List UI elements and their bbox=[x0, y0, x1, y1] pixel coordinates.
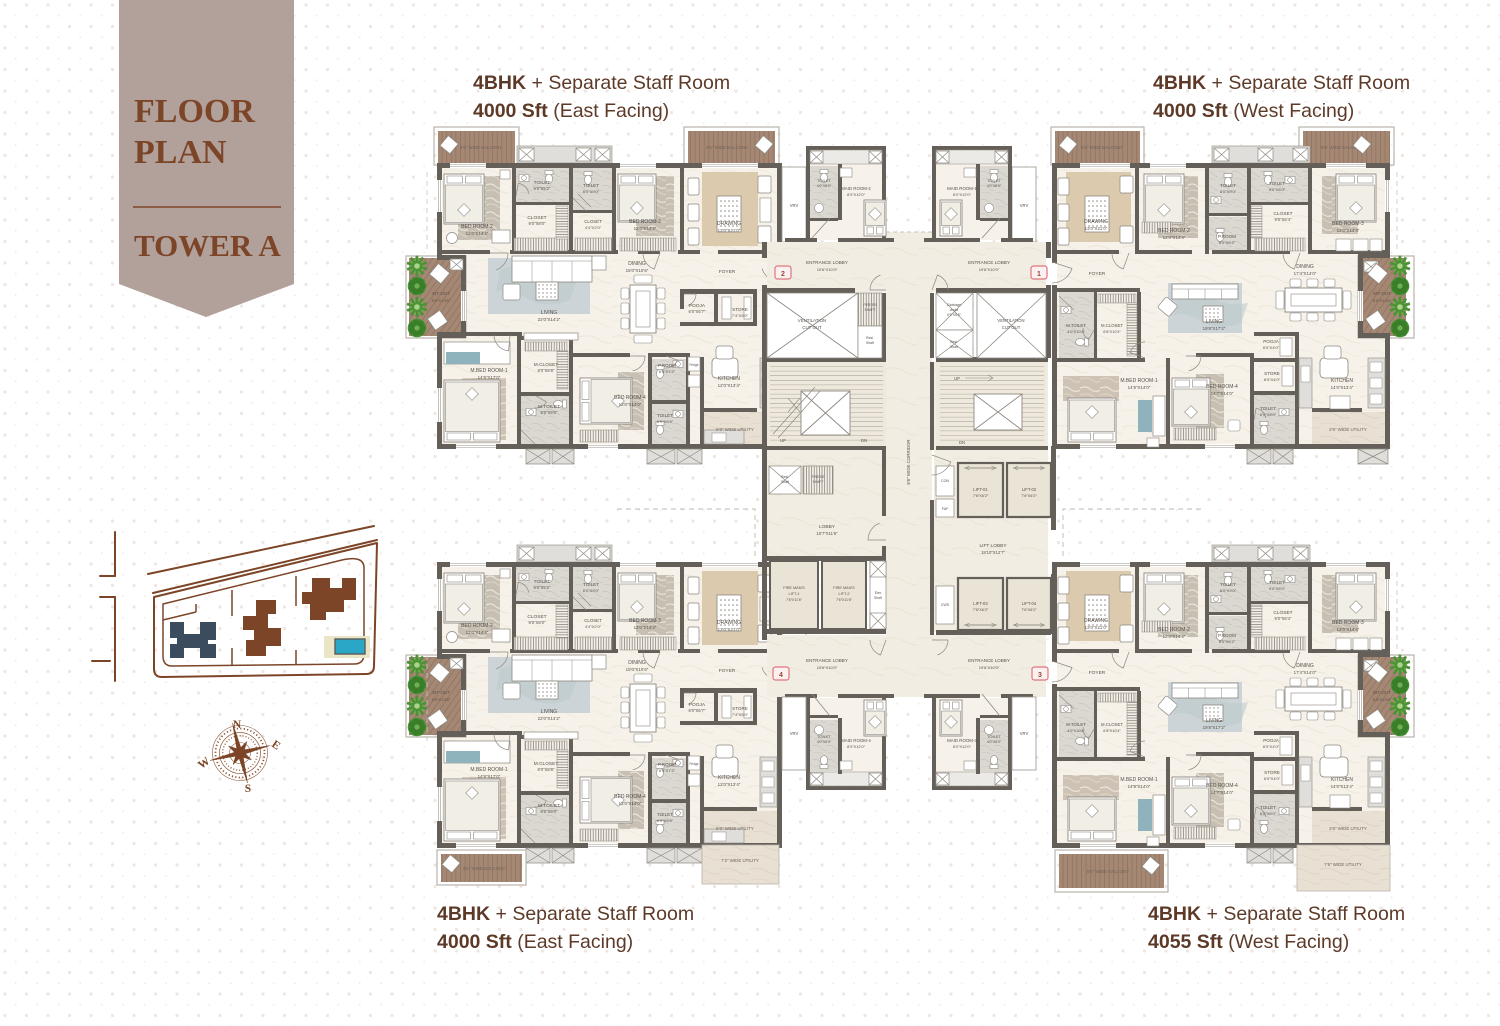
svg-text:6’0″X4’0″: 6’0″X4’0″ bbox=[1264, 776, 1281, 781]
svg-text:LIFT-04: LIFT-04 bbox=[1022, 601, 1037, 606]
svg-text:LIFT-02: LIFT-02 bbox=[1022, 487, 1037, 492]
svg-text:12’0″X14’4″: 12’0″X14’4″ bbox=[634, 625, 657, 630]
svg-text:2: 2 bbox=[781, 271, 785, 278]
svg-text:Shaft: Shaft bbox=[950, 345, 958, 349]
svg-text:BED ROOM-2: BED ROOM-2 bbox=[461, 224, 493, 230]
svg-text:ENTRANCE LOBBY: ENTRANCE LOBBY bbox=[806, 658, 848, 663]
svg-text:DINING: DINING bbox=[1296, 663, 1314, 669]
svg-text:8’0″X9’0″: 8’0″X9’0″ bbox=[541, 809, 558, 814]
svg-text:LIFT-03: LIFT-03 bbox=[973, 601, 988, 606]
svg-text:6’0″ WIDE UTILITY: 6’0″ WIDE UTILITY bbox=[716, 826, 754, 831]
svg-text:8’0″X12’0″: 8’0″X12’0″ bbox=[953, 192, 972, 197]
svg-text:MAID ROOM-1: MAID ROOM-1 bbox=[947, 186, 977, 191]
svg-text:5’6″ WIDE BALCONY: 5’6″ WIDE BALCONY bbox=[1087, 869, 1129, 874]
svg-text:14’0″X13’4″: 14’0″X13’4″ bbox=[1331, 385, 1354, 390]
svg-text:3’6″ WIDE UTILITY: 3’6″ WIDE UTILITY bbox=[1329, 826, 1367, 831]
svg-text:TOILET: TOILET bbox=[657, 413, 673, 418]
svg-text:6’0″X7’2″: 6’0″X7’2″ bbox=[659, 369, 676, 374]
svg-text:6’0″X6.5″: 6’0″X6.5″ bbox=[947, 313, 961, 317]
svg-text:FOYER: FOYER bbox=[719, 668, 736, 674]
svg-text:8’0″X12’0″: 8’0″X12’0″ bbox=[847, 744, 866, 749]
svg-text:7’6″X6’2″: 7’6″X6’2″ bbox=[1021, 608, 1037, 612]
svg-text:LIFT-1: LIFT-1 bbox=[789, 592, 800, 596]
svg-text:FIRE ES: FIRE ES bbox=[863, 303, 877, 307]
svg-text:17’4″X14’0″: 17’4″X14’0″ bbox=[1294, 271, 1317, 276]
svg-text:P.ROOM: P.ROOM bbox=[1218, 633, 1236, 638]
svg-text:7’2″ WIDE UTILITY: 7’2″ WIDE UTILITY bbox=[721, 858, 759, 863]
svg-text:MAID ROOM-2: MAID ROOM-2 bbox=[841, 186, 871, 191]
svg-text:TOILET: TOILET bbox=[1269, 580, 1285, 585]
svg-text:MAID ROOM-4: MAID ROOM-4 bbox=[841, 738, 871, 743]
svg-text:N: N bbox=[233, 719, 242, 731]
svg-text:P.ROOM: P.ROOM bbox=[1218, 234, 1236, 239]
svg-text:4000 Sft (West Facing): 4000 Sft (West Facing) bbox=[1153, 100, 1354, 122]
svg-text:VRV: VRV bbox=[790, 731, 799, 736]
svg-text:BED ROOM-3: BED ROOM-3 bbox=[629, 618, 661, 624]
svg-text:TOILET: TOILET bbox=[817, 734, 831, 739]
svg-text:9’0″X6’4″: 9’0″X6’4″ bbox=[1275, 217, 1292, 222]
svg-text:4’0″X10’4″: 4’0″X10’4″ bbox=[1067, 729, 1085, 733]
svg-text:KITCHEN: KITCHEN bbox=[1331, 378, 1353, 384]
svg-text:FIRE ES: FIRE ES bbox=[812, 475, 826, 479]
svg-text:6’0″X9’0″: 6’0″X9’0″ bbox=[1220, 189, 1237, 194]
svg-text:UP: UP bbox=[780, 438, 786, 443]
svg-text:4BHK + Separate Staff Room: 4BHK + Separate Staff Room bbox=[473, 72, 730, 94]
svg-text:LIVING: LIVING bbox=[541, 310, 558, 316]
svg-text:Shaft: Shaft bbox=[874, 596, 882, 600]
svg-text:12’0″X14’4″: 12’0″X14’4″ bbox=[1163, 634, 1186, 639]
svg-text:6’0″X9’0″: 6’0″X9’0″ bbox=[1220, 588, 1237, 593]
svg-text:BED ROOM-2: BED ROOM-2 bbox=[1158, 627, 1190, 633]
svg-text:FOYER: FOYER bbox=[719, 269, 736, 275]
svg-text:KITCHEN: KITCHEN bbox=[718, 376, 740, 382]
svg-text:3’6″ WIDE BALCONY: 3’6″ WIDE BALCONY bbox=[706, 145, 748, 150]
svg-text:TOILET: TOILET bbox=[1269, 181, 1285, 186]
svg-text:TOILET: TOILET bbox=[1260, 805, 1276, 810]
svg-text:8’0″X9’0″: 8’0″X9’0″ bbox=[541, 410, 558, 415]
svg-text:M.BED ROOM-1: M.BED ROOM-1 bbox=[1120, 378, 1157, 384]
svg-text:SIT-OUT: SIT-OUT bbox=[1373, 690, 1391, 695]
svg-text:4’0″X8’0″: 4’0″X8’0″ bbox=[817, 184, 832, 188]
svg-text:Elec: Elec bbox=[875, 591, 882, 595]
svg-text:6’0″ WIDE UTILITY: 6’0″ WIDE UTILITY bbox=[716, 427, 754, 432]
svg-text:PLAN: PLAN bbox=[134, 134, 227, 171]
svg-text:CLOSET: CLOSET bbox=[584, 618, 602, 623]
svg-text:4BHK + Separate Staff Room: 4BHK + Separate Staff Room bbox=[1153, 72, 1410, 94]
svg-text:4’4″X2’0″: 4’4″X2’0″ bbox=[585, 624, 602, 629]
svg-text:DINING: DINING bbox=[1296, 264, 1314, 270]
svg-text:4’0″X8’0″: 4’0″X8’0″ bbox=[817, 740, 832, 744]
svg-text:DINING: DINING bbox=[628, 660, 646, 666]
svg-text:6’0″X5’7″: 6’0″X5’7″ bbox=[689, 309, 706, 314]
svg-text:LIVING: LIVING bbox=[1206, 718, 1223, 724]
svg-text:7’6″X6’2″: 7’6″X6’2″ bbox=[1021, 494, 1037, 498]
svg-text:FAF: FAF bbox=[942, 507, 949, 511]
svg-text:SIT-OUT: SIT-OUT bbox=[432, 690, 450, 695]
svg-text:4000 Sft (East Facing): 4000 Sft (East Facing) bbox=[473, 100, 669, 122]
svg-text:4055 Sft (West Facing): 4055 Sft (West Facing) bbox=[1148, 931, 1349, 953]
svg-text:9’0″X5’2″: 9’0″X5’2″ bbox=[534, 186, 551, 191]
svg-text:M.BED ROOM-1: M.BED ROOM-1 bbox=[1120, 777, 1157, 783]
svg-text:9’0″X5’2″: 9’0″X5’2″ bbox=[534, 585, 551, 590]
svg-text:VRV: VRV bbox=[790, 203, 799, 208]
svg-text:CUT OUT: CUT OUT bbox=[1002, 325, 1021, 330]
svg-text:TOILET: TOILET bbox=[817, 178, 831, 183]
svg-text:VENTILATION: VENTILATION bbox=[798, 318, 826, 323]
svg-text:SHAFT: SHAFT bbox=[813, 480, 824, 484]
svg-text:4’4″X2’0″: 4’4″X2’0″ bbox=[585, 225, 602, 230]
svg-text:15’0″X10’6″: 15’0″X10’6″ bbox=[626, 667, 649, 672]
svg-text:13’0″X21’0″: 13’0″X21’0″ bbox=[1085, 625, 1108, 630]
svg-text:14’0″X13’4″: 14’0″X13’4″ bbox=[1331, 784, 1354, 789]
svg-text:7’6″X11’6″: 7’6″X11’6″ bbox=[836, 598, 853, 602]
svg-text:CWS: CWS bbox=[941, 603, 950, 607]
svg-text:DN: DN bbox=[959, 440, 965, 445]
svg-text:5’6″ WIDE BALCONY: 5’6″ WIDE BALCONY bbox=[1081, 145, 1123, 150]
svg-text:1: 1 bbox=[1037, 271, 1041, 278]
svg-text:6’0″X4’0″: 6’0″X4’0″ bbox=[1263, 744, 1280, 749]
svg-text:4BHK + Separate Staff Room: 4BHK + Separate Staff Room bbox=[437, 903, 694, 925]
svg-text:FIRE MAN'S: FIRE MAN'S bbox=[783, 586, 805, 590]
svg-text:3’6″ WIDE BALCONY: 3’6″ WIDE BALCONY bbox=[463, 866, 505, 871]
svg-text:6’0″X6’2″: 6’0″X6’2″ bbox=[1219, 639, 1236, 644]
svg-text:6’0″X6’0″: 6’0″X6’0″ bbox=[1260, 811, 1277, 816]
svg-text:22’0″X14’2″: 22’0″X14’2″ bbox=[538, 716, 561, 721]
svg-text:TOILET: TOILET bbox=[583, 183, 599, 188]
svg-text:6’0″X9’0″: 6’0″X9’0″ bbox=[583, 588, 600, 593]
svg-text:SHAFT: SHAFT bbox=[864, 308, 875, 312]
svg-text:UP: UP bbox=[954, 376, 960, 381]
svg-text:4’0″X10’4″: 4’0″X10’4″ bbox=[1067, 330, 1085, 334]
svg-text:FIRE MAN'S: FIRE MAN'S bbox=[833, 586, 855, 590]
svg-text:19’6″X10’0″: 19’6″X10’0″ bbox=[979, 665, 1000, 670]
svg-text:Resi.: Resi. bbox=[781, 475, 789, 479]
svg-text:BED ROOM-4: BED ROOM-4 bbox=[614, 395, 646, 401]
svg-text:14’9″X17’0″: 14’9″X17’0″ bbox=[478, 375, 501, 380]
svg-text:14’9″X14’0″: 14’9″X14’0″ bbox=[1128, 385, 1151, 390]
svg-text:BED ROOM-4: BED ROOM-4 bbox=[614, 794, 646, 800]
svg-text:8’0″X12’0″: 8’0″X12’0″ bbox=[953, 744, 972, 749]
svg-text:VRV: VRV bbox=[1020, 203, 1029, 208]
svg-text:12’0″X14’4″: 12’0″X14’4″ bbox=[1337, 228, 1360, 233]
svg-text:LIFT-01: LIFT-01 bbox=[973, 487, 988, 492]
svg-text:15’0″X10’6″: 15’0″X10’6″ bbox=[626, 268, 649, 273]
svg-text:TOWER A: TOWER A bbox=[134, 228, 281, 263]
svg-text:FOYER: FOYER bbox=[1089, 670, 1106, 676]
svg-text:Fridge: Fridge bbox=[689, 762, 698, 766]
svg-text:13’0″X21’0″: 13’0″X21’0″ bbox=[718, 627, 741, 632]
svg-text:19’6″X10’0″: 19’6″X10’0″ bbox=[817, 665, 838, 670]
svg-text:22’0″X14’2″: 22’0″X14’2″ bbox=[538, 317, 561, 322]
svg-text:ENTRANCE LOBBY: ENTRANCE LOBBY bbox=[806, 260, 848, 265]
svg-text:LOBBY: LOBBY bbox=[819, 524, 836, 530]
svg-text:7’4″X5’0″: 7’4″X5’0″ bbox=[732, 313, 749, 318]
svg-text:CON: CON bbox=[941, 479, 949, 483]
svg-text:STORE: STORE bbox=[1264, 770, 1280, 775]
svg-text:LIVING: LIVING bbox=[541, 709, 558, 715]
svg-text:3’6″ WIDE BALCONY: 3’6″ WIDE BALCONY bbox=[460, 145, 502, 150]
svg-text:12’0″X14’4″: 12’0″X14’4″ bbox=[1337, 627, 1360, 632]
svg-text:12’0″X14’4″: 12’0″X14’4″ bbox=[466, 231, 489, 236]
svg-text:12’0″X14’0″: 12’0″X14’0″ bbox=[619, 801, 642, 806]
svg-text:8’0″X13’6″: 8’0″X13’6″ bbox=[1373, 697, 1392, 702]
svg-text:SIT-OUT: SIT-OUT bbox=[1373, 291, 1391, 296]
svg-text:DINING: DINING bbox=[628, 261, 646, 267]
svg-text:12’0″X13’4″: 12’0″X13’4″ bbox=[718, 383, 741, 388]
svg-text:KITCHEN: KITCHEN bbox=[1331, 777, 1353, 783]
svg-text:4’0″X8’0″: 4’0″X8’0″ bbox=[987, 740, 1002, 744]
svg-text:9’0″X13’6″: 9’0″X13’6″ bbox=[432, 697, 451, 702]
svg-text:4’0″X8’0″: 4’0″X8’0″ bbox=[987, 184, 1002, 188]
svg-text:M.TOILET: M.TOILET bbox=[1066, 722, 1086, 727]
svg-text:9’0″X6’0″: 9’0″X6’0″ bbox=[1269, 187, 1286, 192]
svg-text:9’0″X6’4″: 9’0″X6’4″ bbox=[1275, 616, 1292, 621]
svg-text:M.BED ROOM-1: M.BED ROOM-1 bbox=[470, 368, 507, 374]
svg-text:SIT-OUT: SIT-OUT bbox=[432, 291, 450, 296]
svg-text:12’0″X13’4″: 12’0″X13’4″ bbox=[718, 782, 741, 787]
svg-text:19’6″X10’0″: 19’6″X10’0″ bbox=[817, 267, 838, 272]
svg-text:Resi.: Resi. bbox=[866, 336, 874, 340]
svg-text:DRAWING: DRAWING bbox=[1084, 219, 1108, 225]
svg-text:6’0″X6’6″: 6’0″X6’6″ bbox=[657, 818, 674, 823]
svg-text:TOILET: TOILET bbox=[657, 812, 673, 817]
svg-text:6’0″X6’6″: 6’0″X6’6″ bbox=[657, 419, 674, 424]
svg-text:7’6″ WIDE UTILITY: 7’6″ WIDE UTILITY bbox=[1324, 862, 1362, 867]
svg-text:BED ROOM-2: BED ROOM-2 bbox=[1158, 228, 1190, 234]
svg-text:CLOSET: CLOSET bbox=[584, 219, 602, 224]
svg-text:TOILET: TOILET bbox=[987, 178, 1001, 183]
svg-text:VENTILATION: VENTILATION bbox=[997, 318, 1024, 323]
svg-text:TOILET: TOILET bbox=[987, 734, 1001, 739]
svg-text:7’6″X11’6″: 7’6″X11’6″ bbox=[786, 598, 803, 602]
svg-text:TOILET: TOILET bbox=[1220, 183, 1236, 188]
svg-text:TOILET: TOILET bbox=[583, 582, 599, 587]
svg-text:3’6″ WIDE UTILITY: 3’6″ WIDE UTILITY bbox=[1329, 427, 1367, 432]
svg-text:ENTRANCE LOBBY: ENTRANCE LOBBY bbox=[968, 260, 1010, 265]
svg-text:DN: DN bbox=[861, 438, 867, 443]
svg-text:6’0″X5’7″: 6’0″X5’7″ bbox=[689, 708, 706, 713]
svg-text:DRAWING: DRAWING bbox=[717, 221, 741, 227]
svg-text:12’0″X14’4″: 12’0″X14’4″ bbox=[634, 226, 657, 231]
svg-text:LIFT LOBBY: LIFT LOBBY bbox=[979, 543, 1007, 549]
svg-text:M.BED ROOM-1: M.BED ROOM-1 bbox=[470, 767, 507, 773]
svg-text:BED ROOM-3: BED ROOM-3 bbox=[1332, 620, 1364, 626]
svg-text:FLOOR: FLOOR bbox=[134, 93, 255, 130]
svg-text:P.ROOM: P.ROOM bbox=[658, 762, 676, 767]
svg-text:9’0″X8’0″: 9’0″X8’0″ bbox=[529, 620, 546, 625]
svg-text:6’0″X9’0″: 6’0″X9’0″ bbox=[583, 189, 600, 194]
svg-text:Fridge: Fridge bbox=[689, 363, 698, 367]
svg-text:19’8″X17’2″: 19’8″X17’2″ bbox=[1203, 326, 1226, 331]
svg-text:14’7″X14’0″: 14’7″X14’0″ bbox=[1211, 790, 1234, 795]
svg-text:8’0″X8’8″: 8’0″X8’8″ bbox=[538, 767, 555, 772]
svg-text:STORE: STORE bbox=[732, 307, 748, 312]
svg-text:LIFT-2: LIFT-2 bbox=[839, 592, 850, 596]
svg-text:7’6″X6’2″: 7’6″X6’2″ bbox=[973, 494, 989, 498]
svg-text:6’0″X4’0″: 6’0″X4’0″ bbox=[1263, 345, 1280, 350]
svg-text:6’0″X7’2″: 6’0″X7’2″ bbox=[659, 768, 676, 773]
svg-text:POOJA: POOJA bbox=[1263, 339, 1280, 344]
svg-text:DRAWING: DRAWING bbox=[1084, 618, 1108, 624]
svg-text:19’10″X12’7″: 19’10″X12’7″ bbox=[981, 550, 1005, 555]
svg-text:Shaft: Shaft bbox=[866, 341, 874, 345]
svg-text:9’0″X8’0″: 9’0″X8’0″ bbox=[529, 221, 546, 226]
svg-text:8’0″X8’8″: 8’0″X8’8″ bbox=[538, 368, 555, 373]
svg-text:BED ROOM-3: BED ROOM-3 bbox=[1332, 221, 1364, 227]
svg-text:12’0″X14’4″: 12’0″X14’4″ bbox=[1163, 235, 1186, 240]
svg-text:TOILET: TOILET bbox=[1220, 582, 1236, 587]
svg-text:14’9″X14’0″: 14’9″X14’0″ bbox=[1128, 784, 1151, 789]
svg-text:3: 3 bbox=[1038, 672, 1042, 679]
svg-text:VRV: VRV bbox=[1020, 731, 1029, 736]
svg-text:DRAWING: DRAWING bbox=[717, 620, 741, 626]
svg-text:4000 Sft (East Facing): 4000 Sft (East Facing) bbox=[437, 931, 633, 953]
svg-text:STORE: STORE bbox=[1264, 371, 1280, 376]
svg-text:4: 4 bbox=[779, 672, 783, 679]
svg-text:M.CLOSET: M.CLOSET bbox=[1101, 722, 1123, 727]
svg-text:12’0″X14’4″: 12’0″X14’4″ bbox=[466, 630, 489, 635]
svg-text:P.ROOM: P.ROOM bbox=[658, 363, 676, 368]
svg-text:12’0″X14’0″: 12’0″X14’0″ bbox=[619, 402, 642, 407]
svg-text:4BHK + Separate Staff Room: 4BHK + Separate Staff Room bbox=[1148, 903, 1405, 925]
svg-text:FOYER: FOYER bbox=[1089, 271, 1106, 277]
svg-text:BED ROOM-2: BED ROOM-2 bbox=[461, 623, 493, 629]
svg-text:BED ROOM-3: BED ROOM-3 bbox=[629, 219, 661, 225]
svg-text:14’7″X14’0″: 14’7″X14’0″ bbox=[1211, 391, 1234, 396]
svg-text:S: S bbox=[245, 783, 251, 795]
svg-text:7’4″X5’0″: 7’4″X5’0″ bbox=[732, 712, 749, 717]
svg-text:TOILET: TOILET bbox=[1260, 406, 1276, 411]
svg-text:BED ROOM-4: BED ROOM-4 bbox=[1206, 783, 1238, 789]
svg-text:CUT OUT: CUT OUT bbox=[802, 325, 822, 330]
svg-text:19’6″X10’0″: 19’6″X10’0″ bbox=[979, 267, 1000, 272]
svg-text:Garbage: Garbage bbox=[947, 303, 961, 307]
svg-text:ENTRANCE LOBBY: ENTRANCE LOBBY bbox=[968, 658, 1010, 663]
svg-text:M.CLOSET: M.CLOSET bbox=[1101, 323, 1123, 328]
svg-text:7’6″X6’2″: 7’6″X6’2″ bbox=[973, 608, 989, 612]
svg-text:19’8″X17’2″: 19’8″X17’2″ bbox=[1203, 725, 1226, 730]
svg-text:6’8″X10’4″: 6’8″X10’4″ bbox=[1103, 330, 1121, 334]
svg-text:LIVING: LIVING bbox=[1206, 319, 1223, 325]
svg-text:9’0″X13’6″: 9’0″X13’6″ bbox=[432, 298, 451, 303]
svg-text:8’0″X12’0″: 8’0″X12’0″ bbox=[847, 192, 866, 197]
svg-text:Shaft: Shaft bbox=[781, 480, 789, 484]
svg-text:MAID ROOM-3: MAID ROOM-3 bbox=[947, 738, 977, 743]
svg-text:14’9″X17’0″: 14’9″X17’0″ bbox=[478, 774, 501, 779]
svg-text:6’0″X4’0″: 6’0″X4’0″ bbox=[1264, 377, 1281, 382]
svg-text:17’4″X14’0″: 17’4″X14’0″ bbox=[1294, 670, 1317, 675]
svg-text:9’0″X6’0″: 9’0″X6’0″ bbox=[1269, 586, 1286, 591]
svg-text:Resi.: Resi. bbox=[950, 340, 958, 344]
svg-text:POOJA: POOJA bbox=[1263, 738, 1280, 743]
svg-text:STORE: STORE bbox=[732, 706, 748, 711]
svg-text:6’8″X10’4″: 6’8″X10’4″ bbox=[1103, 729, 1121, 733]
svg-text:8’6″ WIDE CORRIDOR: 8’6″ WIDE CORRIDOR bbox=[906, 439, 911, 484]
svg-text:6’0″X6’0″: 6’0″X6’0″ bbox=[1260, 412, 1277, 417]
svg-text:13’0″X21’0″: 13’0″X21’0″ bbox=[1085, 226, 1108, 231]
svg-text:8’0″X13’6″: 8’0″X13’6″ bbox=[1373, 298, 1392, 303]
svg-text:KITCHEN: KITCHEN bbox=[718, 775, 740, 781]
svg-text:10’7″X11’6″: 10’7″X11’6″ bbox=[816, 531, 838, 536]
svg-text:13’0″X21’0″: 13’0″X21’0″ bbox=[718, 228, 741, 233]
svg-text:M.TOILET: M.TOILET bbox=[1066, 323, 1086, 328]
svg-text:chute: chute bbox=[950, 308, 959, 312]
svg-text:6’0″X6’2″: 6’0″X6’2″ bbox=[1219, 240, 1236, 245]
svg-text:BED ROOM-4: BED ROOM-4 bbox=[1206, 384, 1238, 390]
